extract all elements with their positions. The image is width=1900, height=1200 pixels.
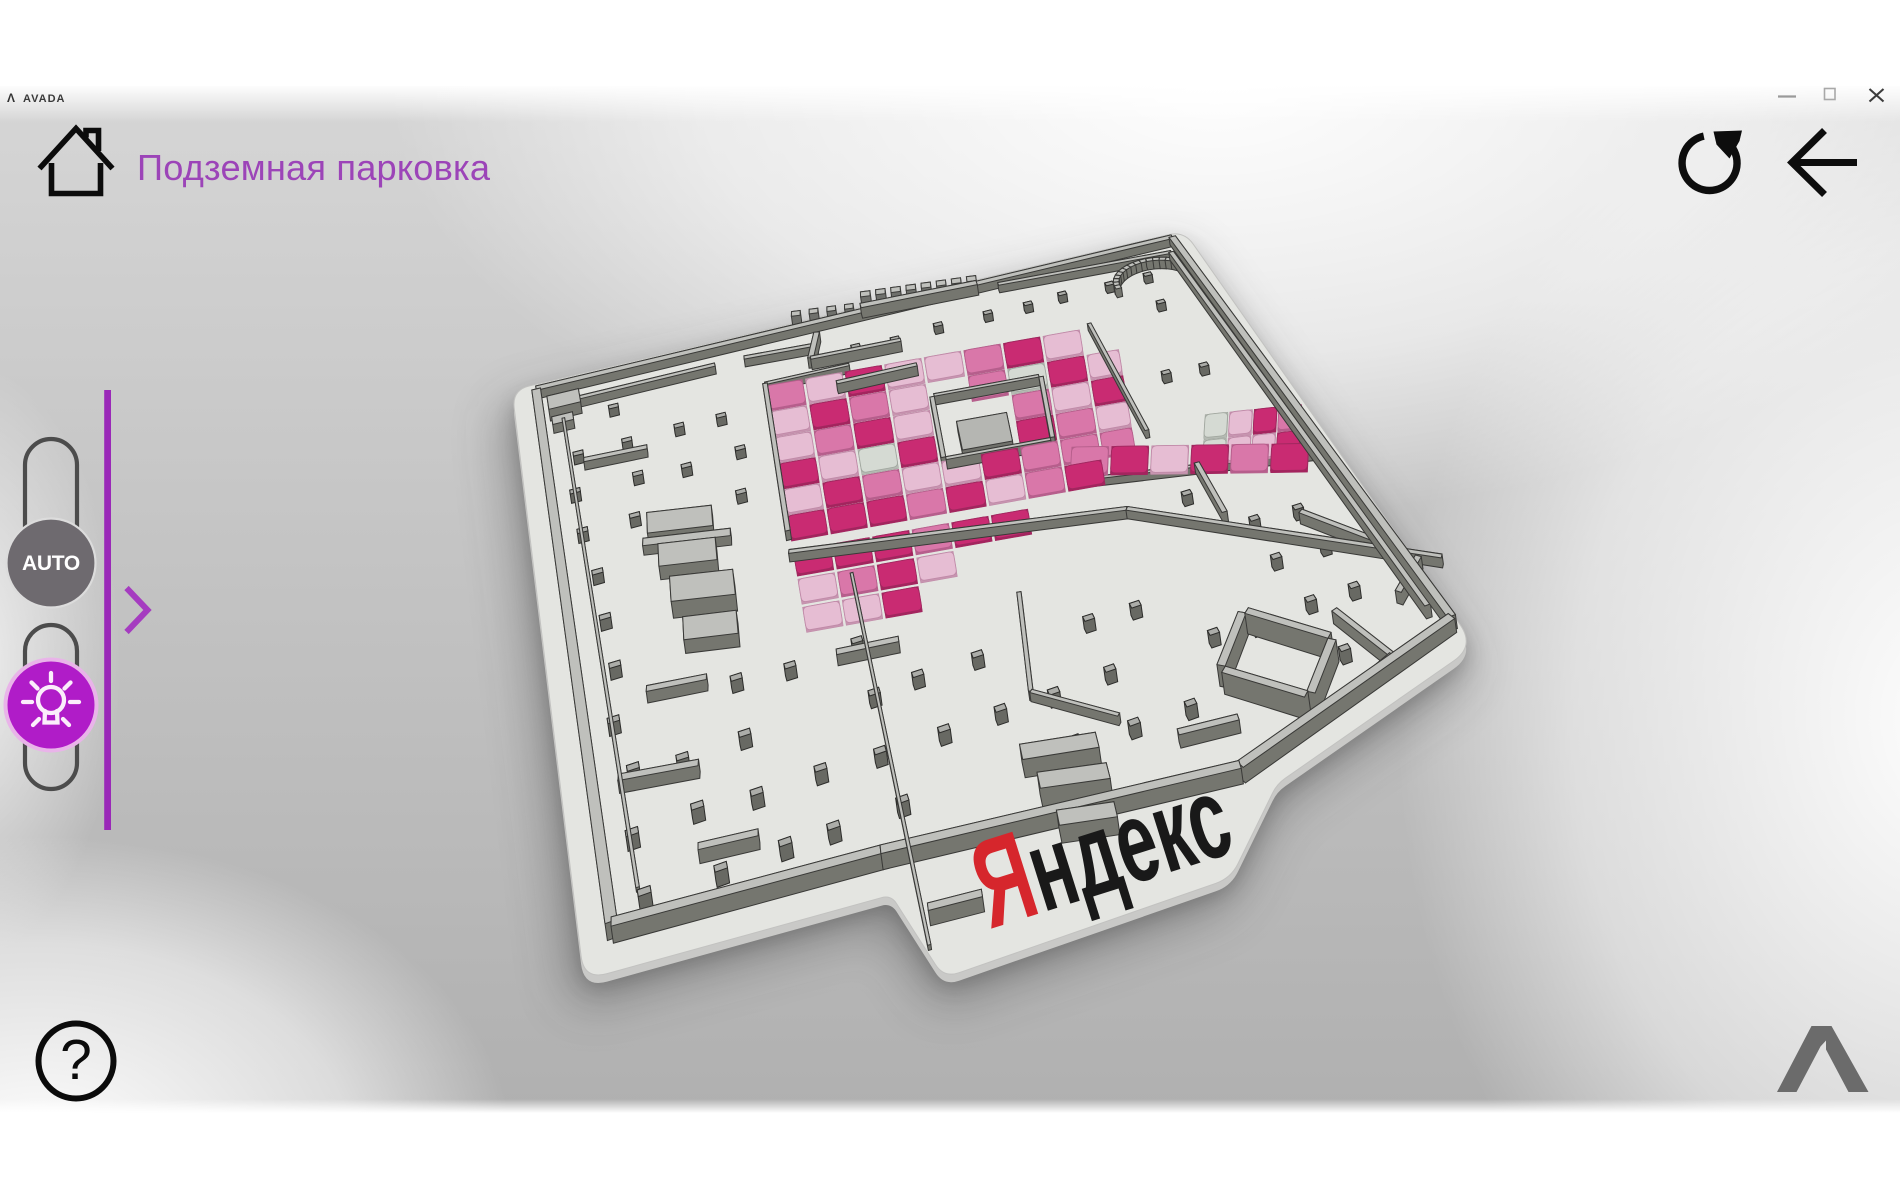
svg-text:Подземная парковка: Подземная парковка (137, 147, 491, 188)
svg-text:?: ? (60, 1028, 92, 1092)
svg-text:AUTO: AUTO (22, 552, 80, 575)
svg-text:Λ: Λ (7, 91, 16, 105)
svg-text:AVADA: AVADA (23, 93, 65, 105)
